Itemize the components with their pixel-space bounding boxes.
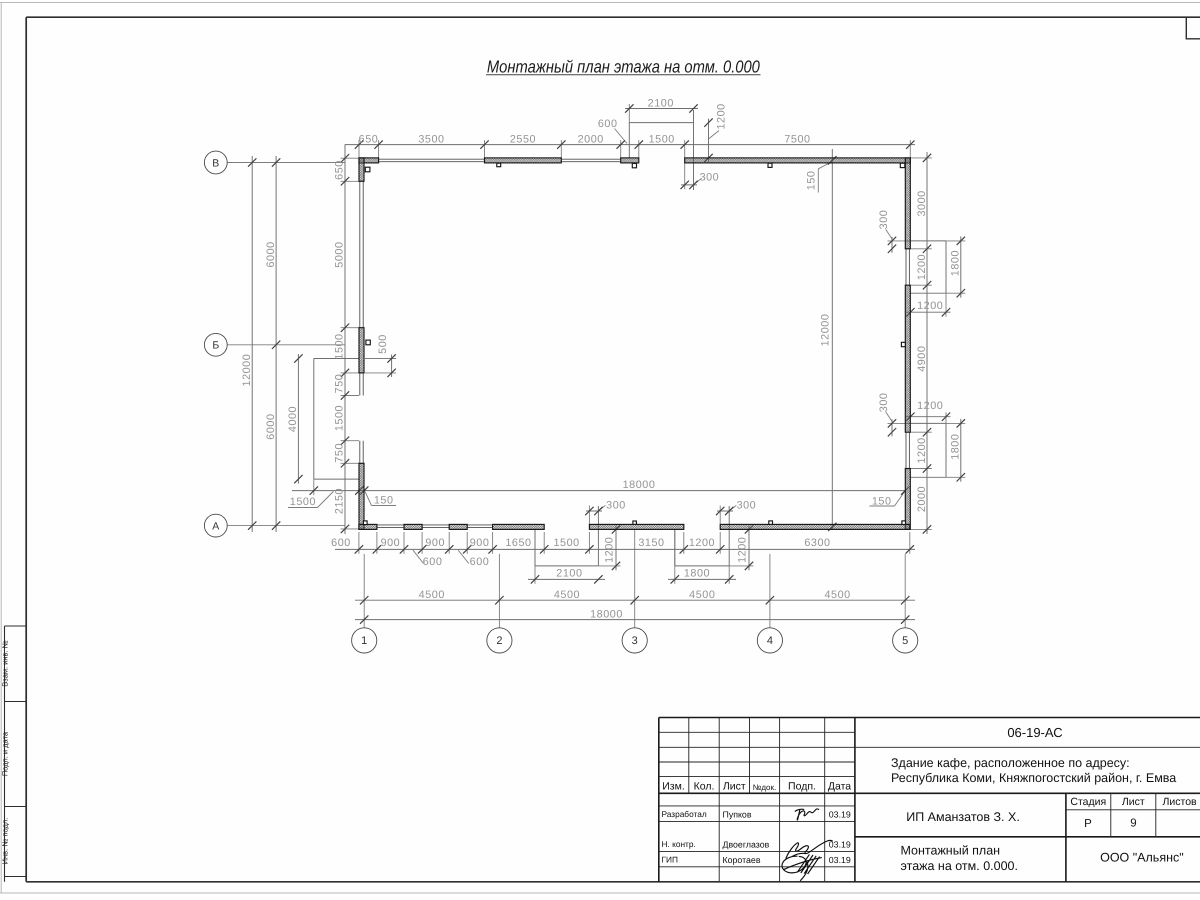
svg-text:4500: 4500 xyxy=(554,589,580,601)
svg-text:1800: 1800 xyxy=(684,567,710,579)
svg-text:600: 600 xyxy=(598,118,618,130)
svg-text:300: 300 xyxy=(700,172,720,184)
svg-text:7500: 7500 xyxy=(784,134,810,146)
svg-text:5000: 5000 xyxy=(334,241,346,267)
svg-text:1500: 1500 xyxy=(553,537,579,549)
svg-text:3: 3 xyxy=(632,635,638,647)
svg-text:150: 150 xyxy=(872,496,892,508)
svg-text:150: 150 xyxy=(374,495,394,507)
svg-text:1500: 1500 xyxy=(334,333,346,359)
svg-text:6000: 6000 xyxy=(265,413,277,439)
svg-text:№док.: №док. xyxy=(753,783,776,792)
svg-text:2000: 2000 xyxy=(578,134,604,146)
svg-text:Подп.: Подп. xyxy=(788,780,816,792)
svg-text:03.19: 03.19 xyxy=(829,855,851,865)
svg-text:этажа на отм. 0.000.: этажа на отм. 0.000. xyxy=(901,859,1018,873)
svg-text:3500: 3500 xyxy=(418,134,444,146)
svg-text:Разработал: Разработал xyxy=(662,809,707,819)
svg-text:650: 650 xyxy=(334,160,346,180)
svg-text:4000: 4000 xyxy=(287,406,299,432)
svg-text:2150: 2150 xyxy=(334,488,346,514)
svg-text:А: А xyxy=(212,520,219,532)
svg-text:300: 300 xyxy=(606,499,626,511)
svg-text:1200: 1200 xyxy=(917,400,943,412)
svg-text:Здание кафе, расположенное по: Здание кафе, расположенное по адресу: xyxy=(891,756,1130,770)
svg-text:600: 600 xyxy=(470,556,490,568)
svg-text:2100: 2100 xyxy=(648,97,674,109)
svg-text:12000: 12000 xyxy=(819,314,831,347)
svg-text:Стадия: Стадия xyxy=(1070,796,1106,808)
svg-text:1200: 1200 xyxy=(604,537,616,563)
svg-text:1500: 1500 xyxy=(290,496,316,508)
svg-text:1800: 1800 xyxy=(950,250,962,276)
svg-text:Двоеглазов: Двоеглазов xyxy=(723,839,770,849)
svg-text:Пупков: Пупков xyxy=(723,809,752,819)
svg-text:Лист: Лист xyxy=(1122,796,1145,808)
svg-text:Р: Р xyxy=(1084,818,1092,830)
svg-text:18000: 18000 xyxy=(623,479,656,491)
svg-text:Инв. № подл.: Инв. № подл. xyxy=(1,818,10,865)
svg-text:Взам. инв. №: Взам. инв. № xyxy=(1,640,10,686)
svg-text:1200: 1200 xyxy=(716,103,728,129)
svg-text:750: 750 xyxy=(334,374,346,394)
svg-text:ГИП: ГИП xyxy=(662,855,678,865)
svg-text:2000: 2000 xyxy=(916,486,928,512)
svg-text:900: 900 xyxy=(381,537,401,549)
svg-text:1200: 1200 xyxy=(916,437,928,463)
svg-text:Монтажный план: Монтажный план xyxy=(901,844,1001,858)
svg-text:2550: 2550 xyxy=(510,134,536,146)
svg-text:500: 500 xyxy=(377,334,389,354)
svg-text:1200: 1200 xyxy=(689,537,715,549)
svg-text:1200: 1200 xyxy=(916,254,928,280)
svg-text:1500: 1500 xyxy=(334,405,346,431)
svg-text:4500: 4500 xyxy=(419,589,445,601)
svg-text:600: 600 xyxy=(331,537,351,549)
svg-text:150: 150 xyxy=(806,171,818,191)
svg-text:1800: 1800 xyxy=(950,434,962,460)
svg-text:650: 650 xyxy=(359,134,379,146)
svg-text:Н. контр.: Н. контр. xyxy=(662,839,696,849)
svg-text:1200: 1200 xyxy=(917,300,943,312)
svg-text:Монтажный план этажа на отм. 0: Монтажный план этажа на отм. 0.000 xyxy=(487,57,760,77)
svg-text:4500: 4500 xyxy=(824,589,850,601)
svg-text:900: 900 xyxy=(425,537,445,549)
svg-text:В: В xyxy=(212,157,219,169)
svg-text:6300: 6300 xyxy=(804,537,830,549)
svg-text:2100: 2100 xyxy=(556,567,582,579)
svg-text:ООО "Альянс": ООО "Альянс" xyxy=(1100,851,1184,865)
svg-text:Листов: Листов xyxy=(1163,796,1198,808)
svg-text:1: 1 xyxy=(361,635,367,647)
svg-text:Коротаев: Коротаев xyxy=(723,855,761,865)
svg-text:4: 4 xyxy=(767,635,773,647)
svg-text:Изм.: Изм. xyxy=(662,780,685,792)
svg-text:900: 900 xyxy=(470,537,490,549)
svg-text:1500: 1500 xyxy=(649,134,675,146)
svg-text:4900: 4900 xyxy=(916,346,928,372)
svg-text:Кол.: Кол. xyxy=(694,780,715,792)
svg-text:600: 600 xyxy=(423,556,443,568)
svg-text:18000: 18000 xyxy=(590,608,623,620)
svg-text:300: 300 xyxy=(878,393,890,413)
svg-text:6000: 6000 xyxy=(265,241,277,267)
svg-text:3150: 3150 xyxy=(638,537,664,549)
svg-text:Лист: Лист xyxy=(723,780,746,792)
svg-text:750: 750 xyxy=(334,443,346,463)
svg-text:4500: 4500 xyxy=(689,589,715,601)
svg-text:3000: 3000 xyxy=(916,190,928,216)
svg-text:1200: 1200 xyxy=(736,537,748,563)
svg-text:300: 300 xyxy=(878,210,890,230)
svg-text:Дата: Дата xyxy=(828,780,851,792)
svg-text:06-19-АС: 06-19-АС xyxy=(1007,725,1062,740)
svg-text:12000: 12000 xyxy=(241,354,253,387)
svg-text:Подп. и дата: Подп. и дата xyxy=(1,731,10,776)
svg-text:03.19: 03.19 xyxy=(829,809,851,819)
svg-text:Республика Коми, Княжпогостски: Республика Коми, Княжпогостский район, г… xyxy=(891,771,1176,785)
svg-text:Б: Б xyxy=(212,340,219,352)
svg-text:9: 9 xyxy=(1130,818,1136,830)
svg-text:5: 5 xyxy=(902,635,908,647)
svg-text:1650: 1650 xyxy=(505,537,531,549)
svg-text:ИП Аманзатов З. Х.: ИП Аманзатов З. Х. xyxy=(906,810,1020,824)
svg-text:2: 2 xyxy=(496,635,502,647)
svg-text:300: 300 xyxy=(737,499,757,511)
